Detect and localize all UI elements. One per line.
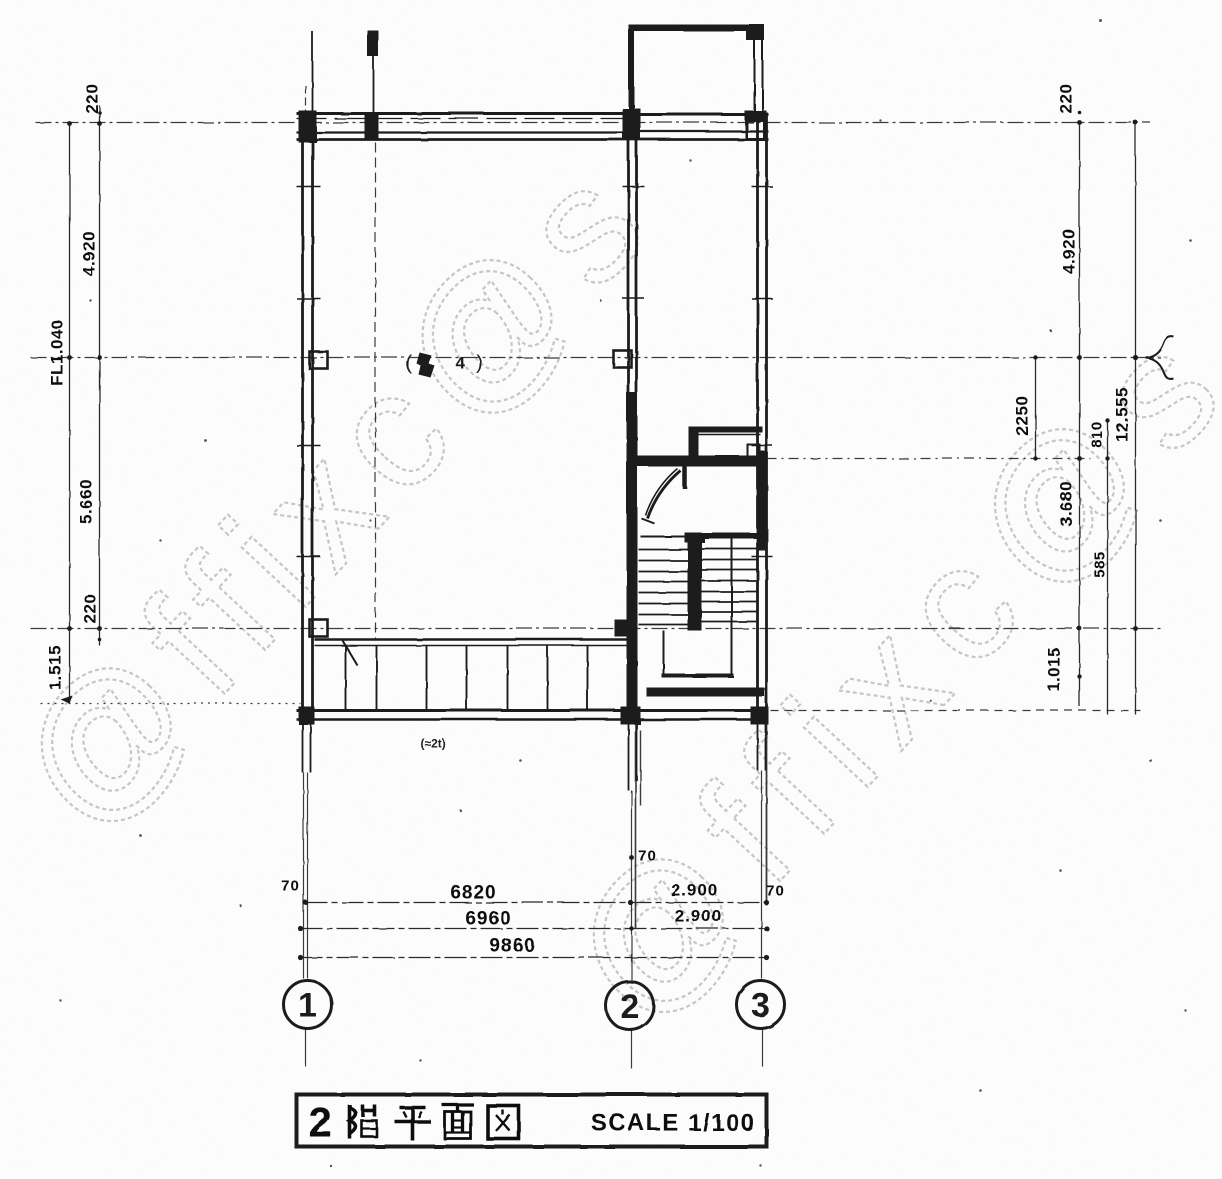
svg-text:1.515: 1.515: [45, 644, 64, 689]
svg-text:): ): [476, 352, 483, 374]
svg-text:6960: 6960: [465, 908, 511, 929]
svg-text:585: 585: [1091, 551, 1108, 578]
svg-text:(≈2t): (≈2t): [420, 736, 445, 750]
svg-text:SCALE 1/100: SCALE 1/100: [590, 1109, 755, 1136]
svg-text:2: 2: [620, 987, 639, 1025]
svg-text:70: 70: [281, 877, 300, 894]
svg-text:1.015: 1.015: [1044, 646, 1063, 691]
svg-text:5.660: 5.660: [76, 478, 95, 523]
svg-text:3.680: 3.680: [1056, 480, 1075, 525]
svg-text:FL1.040: FL1.040: [47, 319, 66, 386]
svg-text:3: 3: [751, 986, 770, 1024]
svg-text:220: 220: [80, 593, 99, 623]
svg-text:(: (: [405, 352, 412, 374]
svg-text:6820: 6820: [450, 882, 496, 903]
svg-text:2.900: 2.900: [674, 906, 722, 925]
svg-text:12.555: 12.555: [1112, 387, 1131, 442]
svg-text:4: 4: [455, 353, 465, 372]
svg-text:4.920: 4.920: [79, 230, 98, 275]
svg-text:2: 2: [308, 1098, 331, 1145]
svg-text:220: 220: [82, 83, 101, 113]
svg-text:2.900: 2.900: [670, 880, 718, 899]
svg-text:4.920: 4.920: [1059, 228, 1078, 273]
svg-text:2250: 2250: [1012, 395, 1031, 435]
svg-text:1: 1: [298, 986, 317, 1024]
svg-text:70: 70: [638, 847, 657, 864]
svg-text:220: 220: [1056, 83, 1075, 113]
svg-text:9860: 9860: [489, 935, 535, 956]
svg-text:70: 70: [766, 882, 785, 899]
svg-text:810: 810: [1088, 421, 1105, 448]
